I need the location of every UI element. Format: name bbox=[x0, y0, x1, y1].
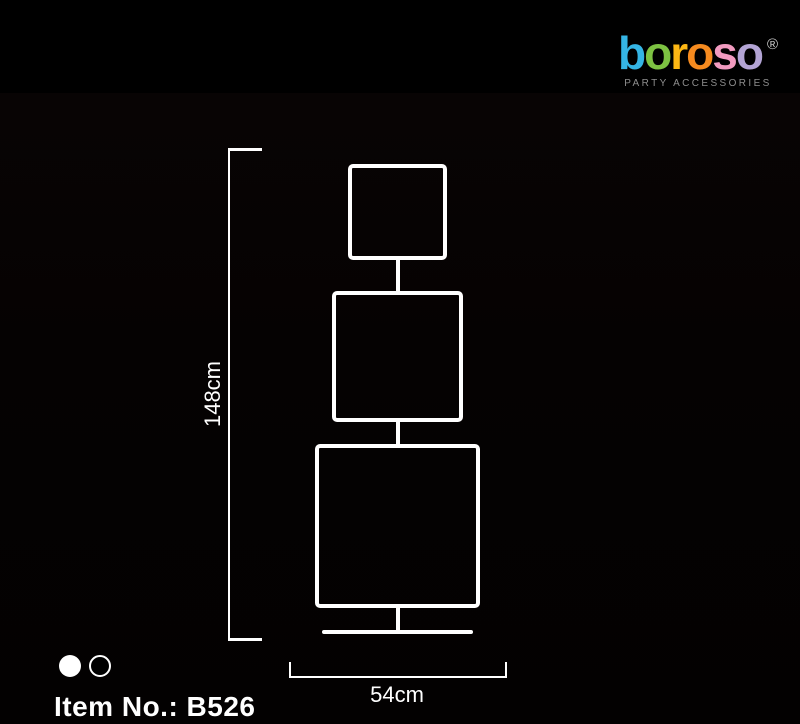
brand-logo: boroso® PARTY ACCESSORIES bbox=[608, 22, 788, 89]
top-square-frame bbox=[348, 164, 447, 260]
brand-wordmark: boroso® bbox=[608, 22, 788, 76]
brand-tagline: PARTY ACCESSORIES bbox=[608, 78, 788, 89]
color-options bbox=[59, 655, 111, 677]
logo-letter-s: s bbox=[712, 27, 736, 79]
connector-stem-middle bbox=[396, 420, 400, 446]
width-dimension-line bbox=[289, 662, 507, 678]
height-dimension-line bbox=[228, 148, 262, 641]
width-dimension-label: 54cm bbox=[346, 682, 448, 708]
connector-stem-bottom bbox=[396, 606, 400, 633]
middle-square-frame bbox=[332, 291, 463, 422]
product-spec-page: boroso® PARTY ACCESSORIES 148cm 54cm Ite… bbox=[0, 0, 800, 724]
connector-stem-top bbox=[396, 258, 400, 293]
color-option-black-icon bbox=[89, 655, 111, 677]
logo-letter-o2: o bbox=[686, 27, 712, 79]
registered-trademark-icon: ® bbox=[767, 22, 778, 68]
base-bar bbox=[322, 630, 473, 634]
item-number: Item No.: B526 bbox=[54, 691, 256, 723]
logo-letter-b: b bbox=[618, 27, 644, 79]
logo-letter-r: r bbox=[670, 27, 686, 79]
logo-letter-o3: o bbox=[736, 27, 762, 79]
bottom-square-frame bbox=[315, 444, 480, 608]
color-option-white-icon bbox=[59, 655, 81, 677]
height-dimension-label: 148cm bbox=[201, 339, 225, 449]
logo-letter-o1: o bbox=[644, 27, 670, 79]
